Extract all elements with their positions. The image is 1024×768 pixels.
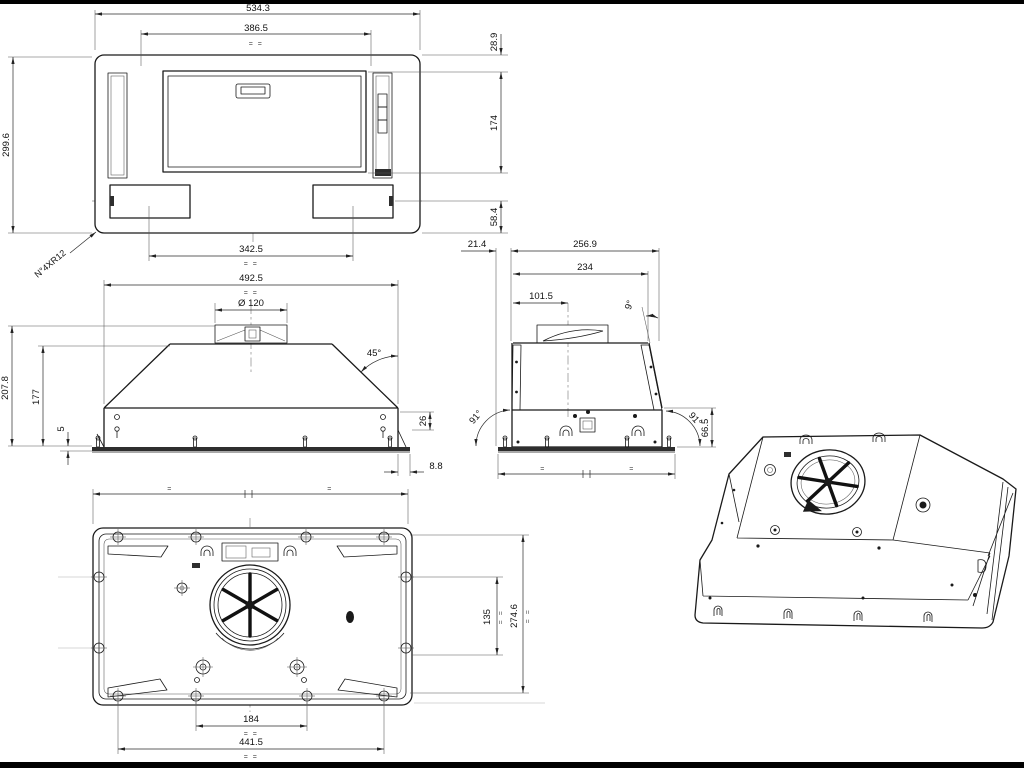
dim-width-inner: 386.5 [244,23,268,34]
dim-inner-depth: 274.6 [509,604,520,628]
dim-depth-overall: 256.9 [573,239,597,250]
svg-text:= =: = = [244,261,259,268]
technical-drawing-page: 534.3 386.5 = = 299.6 28.9 174 58.4 342.… [0,0,1024,768]
svg-text:= =: = = [244,754,259,761]
iso-silhouette [695,435,1016,628]
rating-label [375,169,391,176]
dim-height-overall: 299.6 [1,133,12,157]
symmetry-marks: = = [249,41,264,48]
dim-height-overall-front: 207.8 [0,376,11,400]
dim-duct-center: 101.5 [529,291,553,302]
dim-flange-overhang: 8.8 [429,461,442,472]
dim-width-overall: 534.3 [246,3,270,14]
dim-lower-height: 66.5 [700,419,711,438]
svg-text:= =: = = [525,609,532,624]
svg-text:= =: = = [244,290,259,297]
duct-spigot [215,325,287,343]
dim-screw-span: 441.5 [239,737,263,748]
dim-bracket-spacing: 342.5 [239,244,263,255]
dim-flange-thickness: 5 [56,426,67,431]
equal-mark: = [167,486,173,493]
dim-slope-angle: 45° [367,348,382,359]
dim-height-body: 177 [31,389,42,405]
dim-corner-height: 26 [418,416,429,427]
dim-body-width: 492.5 [239,273,263,284]
equal-mark: = [540,466,546,473]
dim-top-inset: 28.9 [489,33,500,52]
dim-bracket-to-bottom: 58.4 [489,208,500,227]
equal-mark: = [327,486,333,493]
dim-duct-diameter: Ø 120 [238,298,264,309]
svg-text:= =: = = [498,610,505,625]
dim-depth-body: 234 [577,262,593,273]
mounting-flange [92,447,410,451]
dim-panel-height: 174 [489,115,500,131]
dim-bracket-vertical: 135 [482,609,493,625]
equal-mark: = [629,466,635,473]
mounting-flange-side [498,447,675,451]
isometric-view [695,433,1016,628]
dim-bracket-spacing-bottom: 184 [243,714,259,725]
hood-dimension-drawing: 534.3 386.5 = = 299.6 28.9 174 58.4 342.… [0,0,1024,768]
hood-outer-body [95,55,420,233]
dim-flange-inset: 21.4 [468,239,487,250]
hood-bottom-frame [93,528,412,705]
